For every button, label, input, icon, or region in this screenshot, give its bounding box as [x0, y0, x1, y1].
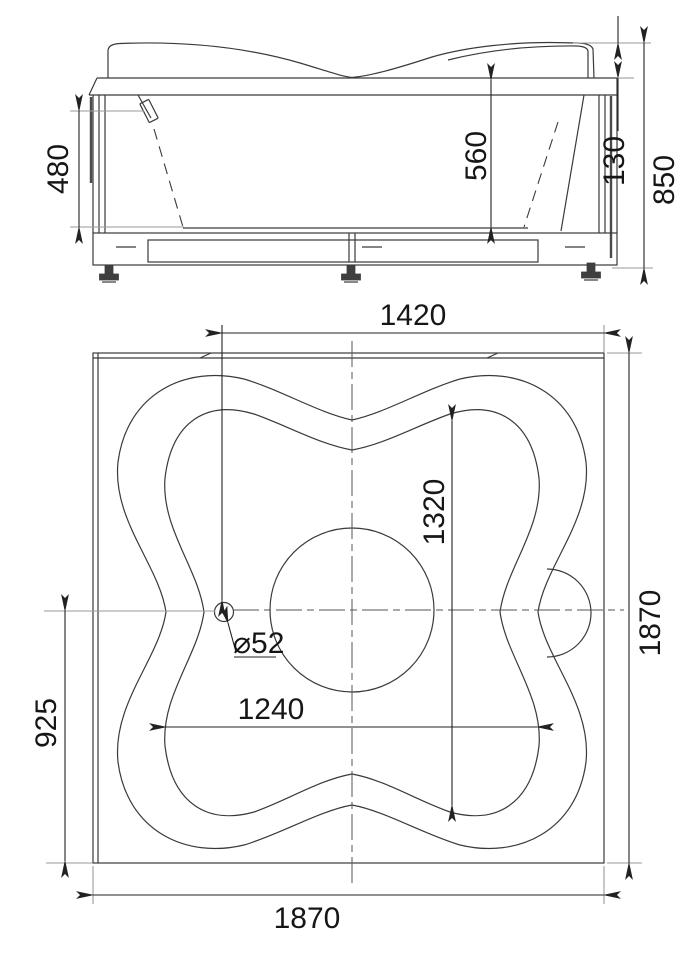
dim-1240-label: 1240 — [238, 693, 305, 726]
dim-560: 560 — [460, 80, 493, 227]
tub-rim-band — [89, 78, 617, 95]
adjustable-foot-left — [100, 265, 119, 282]
dim-850-label: 850 — [648, 155, 681, 205]
dim-1320: 1320 — [418, 421, 452, 805]
base-frame-panel — [148, 240, 538, 262]
dim-1870-right-label: 1870 — [634, 590, 667, 657]
dim-480-label: 480 — [42, 144, 75, 194]
dim-1870-right: 1870 — [607, 353, 667, 863]
technical-drawing-page: 480 560 130 850 — [0, 0, 696, 965]
side-pocket-bump — [547, 569, 591, 657]
deck-outline — [93, 353, 604, 863]
dim-diameter-52: ⌀52 — [228, 623, 284, 660]
base-frame-center-seam — [349, 233, 355, 262]
dim-925: 925 — [30, 611, 92, 863]
dim-130-label: 130 — [598, 136, 631, 186]
dim-1870-bottom: 1870 — [93, 866, 604, 935]
drain-hole — [215, 603, 234, 622]
side-view: 480 560 130 850 — [42, 16, 681, 282]
dim-480: 480 — [42, 111, 184, 227]
deck-top-joint-ticks — [200, 353, 498, 358]
basin-right-slope — [561, 95, 584, 231]
dim-1320-label: 1320 — [418, 479, 451, 546]
basin-right-slope-hidden — [524, 122, 558, 227]
plan-view: 1420 1320 ⌀52 1240 925 1870 — [30, 299, 667, 935]
bathtub-technical-drawing: 480 560 130 850 — [0, 0, 696, 965]
adjustable-foot-middle — [342, 265, 361, 282]
basin-left-slope — [138, 95, 151, 118]
dim-925-label: 925 — [30, 698, 63, 748]
basin-left-slope-hidden — [154, 129, 183, 227]
dim-1420-label: 1420 — [380, 299, 447, 332]
apron-left-edge — [93, 95, 105, 233]
dim-diameter-52-label: ⌀52 — [233, 627, 284, 660]
headrest-inner-edge — [448, 46, 588, 78]
dim-560-label: 560 — [460, 131, 493, 181]
dim-1870-bottom-label: 1870 — [274, 902, 341, 935]
